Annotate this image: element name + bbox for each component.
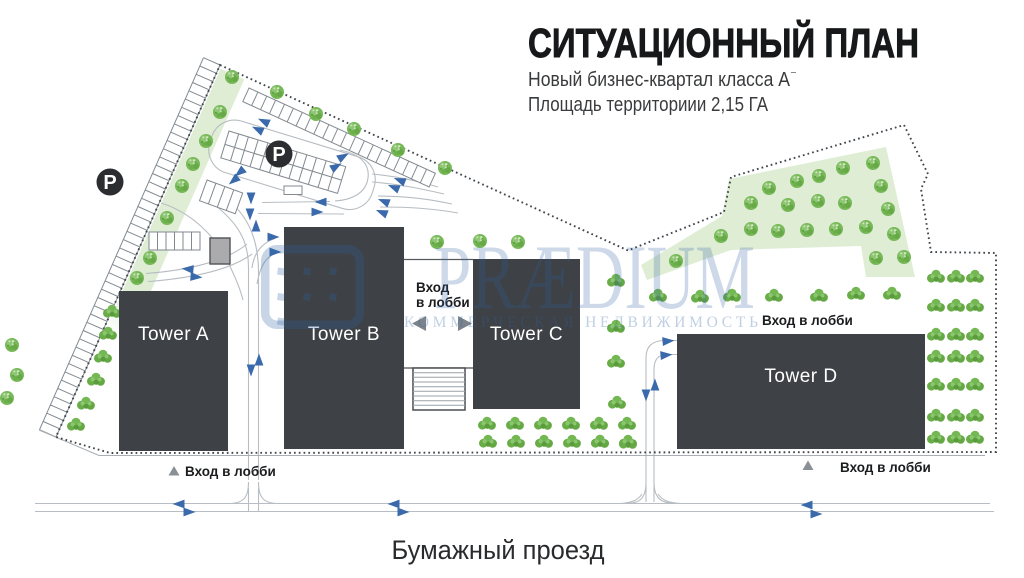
svg-text:Вход в лобби: Вход в лобби	[185, 464, 276, 479]
svg-text:P: P	[272, 144, 285, 166]
svg-text:Вход в лобби: Вход в лобби	[840, 460, 931, 475]
svg-text:Новый бизнес-квартал класса А⁻: Новый бизнес-квартал класса А⁻	[528, 67, 797, 91]
svg-text:СИТУАЦИОННЫЙ ПЛАН: СИТУАЦИОННЫЙ ПЛАН	[528, 20, 919, 66]
svg-text:Бумажный проезд: Бумажный проезд	[392, 535, 605, 565]
svg-text:Tower A: Tower A	[138, 324, 209, 345]
svg-text:PRÆDIUM: PRÆDIUM	[434, 226, 755, 328]
svg-text:P: P	[103, 172, 116, 194]
svg-text:Tower D: Tower D	[764, 366, 837, 387]
svg-text:Вход в лобби: Вход в лобби	[762, 313, 853, 328]
svg-text:Площадь территориии 2,15 ГА: Площадь территориии 2,15 ГА	[528, 94, 769, 116]
